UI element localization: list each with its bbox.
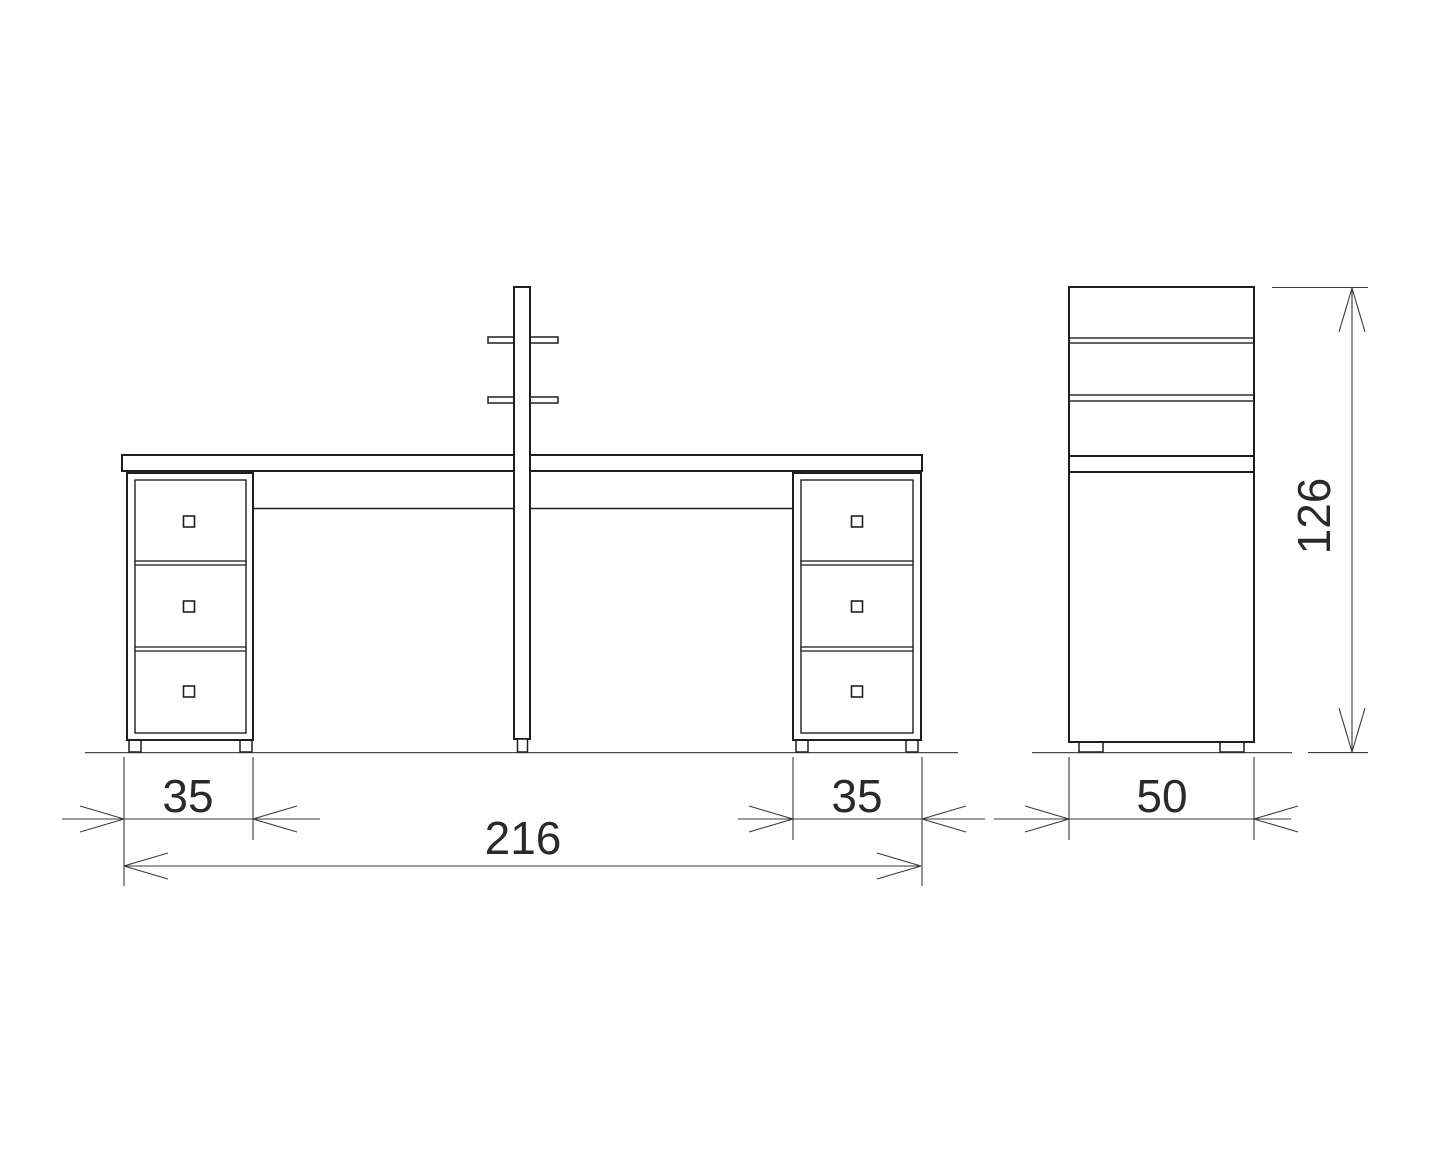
pole-foot: [518, 739, 528, 752]
drawer-divider: [801, 647, 913, 651]
dim-label-overall-height: 126: [1288, 478, 1340, 555]
drawer-divider: [135, 647, 246, 651]
dim-label-right-pedestal-width: 35: [831, 770, 882, 822]
technical-drawing: 35 35 216 50 126: [0, 0, 1445, 1158]
left-pedestal: [127, 473, 253, 752]
center-pole: [514, 287, 530, 739]
right-pedestal: [793, 473, 921, 752]
drawer-divider: [801, 561, 913, 565]
side-view: [1032, 287, 1292, 753]
side-outline: [1069, 287, 1254, 742]
dim-label-side-depth: 50: [1136, 770, 1187, 822]
right-pedestal-drawer-stack: [801, 480, 913, 733]
drawing-svg: 35 35 216 50 126: [0, 0, 1445, 1158]
dim-label-left-pedestal-width: 35: [162, 770, 213, 822]
dim-label-overall-width: 216: [485, 812, 562, 864]
left-pedestal-drawer-stack: [135, 480, 246, 733]
drawer-divider: [135, 561, 246, 565]
